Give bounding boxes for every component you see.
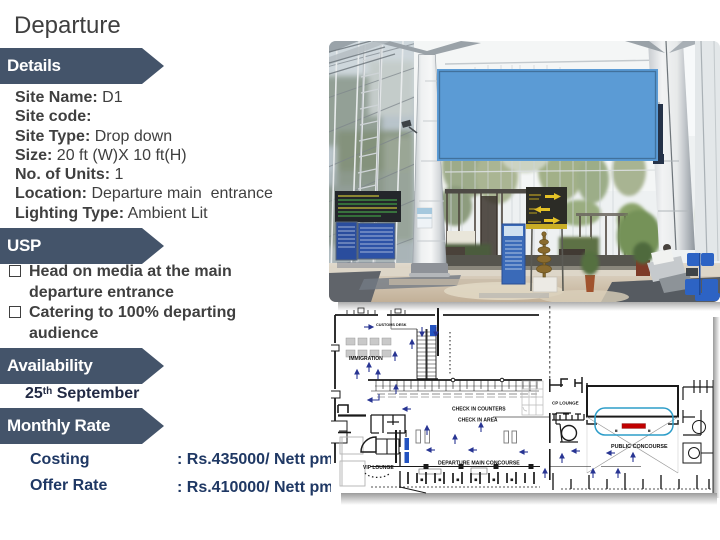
svg-text:CHECK IN COUNTERS: CHECK IN COUNTERS bbox=[452, 407, 506, 413]
svg-text:CHECK IN AREA: CHECK IN AREA bbox=[458, 418, 498, 424]
svg-text:PUBLIC CONCOURSE: PUBLIC CONCOURSE bbox=[611, 444, 668, 450]
svg-text:CUSTOMS DESK: CUSTOMS DESK bbox=[376, 323, 407, 327]
svg-text:CP LOUNGE: CP LOUNGE bbox=[552, 401, 579, 406]
svg-text:VIP LOUNGE: VIP LOUNGE bbox=[363, 465, 394, 471]
svg-text:IMMIGRATION: IMMIGRATION bbox=[349, 356, 383, 362]
svg-text:DEPARTURE MAIN CONCOURSE: DEPARTURE MAIN CONCOURSE bbox=[438, 461, 520, 467]
